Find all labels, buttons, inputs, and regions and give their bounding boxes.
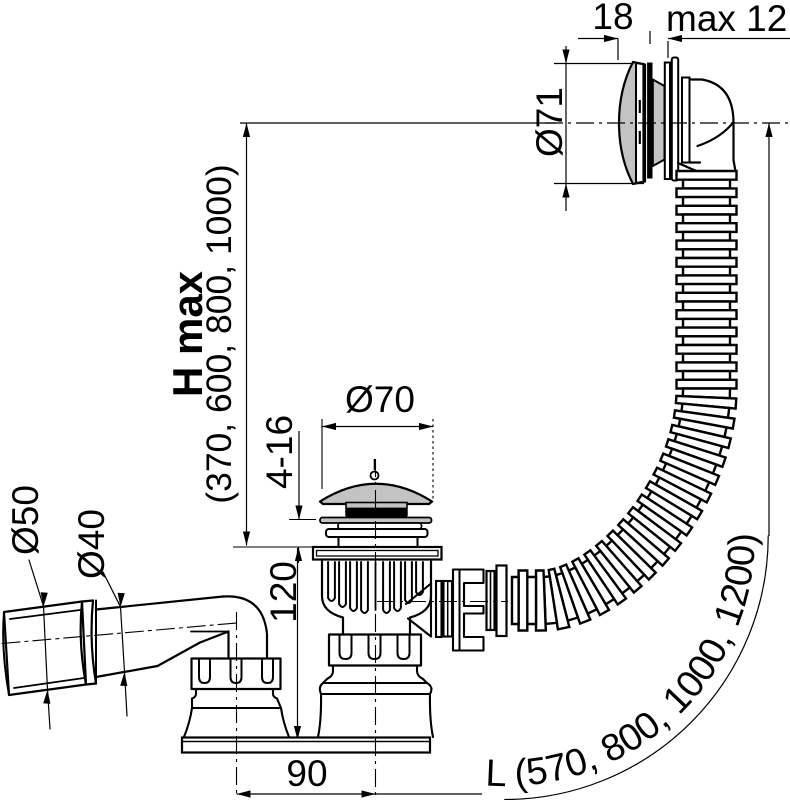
svg-text:Ø40: Ø40	[71, 509, 112, 579]
svg-text:120: 120	[263, 561, 304, 623]
svg-text:Ø50: Ø50	[5, 485, 46, 555]
svg-text:18: 18	[592, 0, 633, 37]
svg-text:(370, 600, 800, 1000): (370, 600, 800, 1000)	[199, 164, 239, 504]
svg-text:max 12: max 12	[666, 0, 787, 39]
svg-text:Ø70: Ø70	[345, 379, 415, 420]
svg-text:Ø71: Ø71	[529, 87, 570, 157]
svg-text:4-16: 4-16	[259, 415, 300, 489]
svg-text:90: 90	[286, 753, 327, 794]
